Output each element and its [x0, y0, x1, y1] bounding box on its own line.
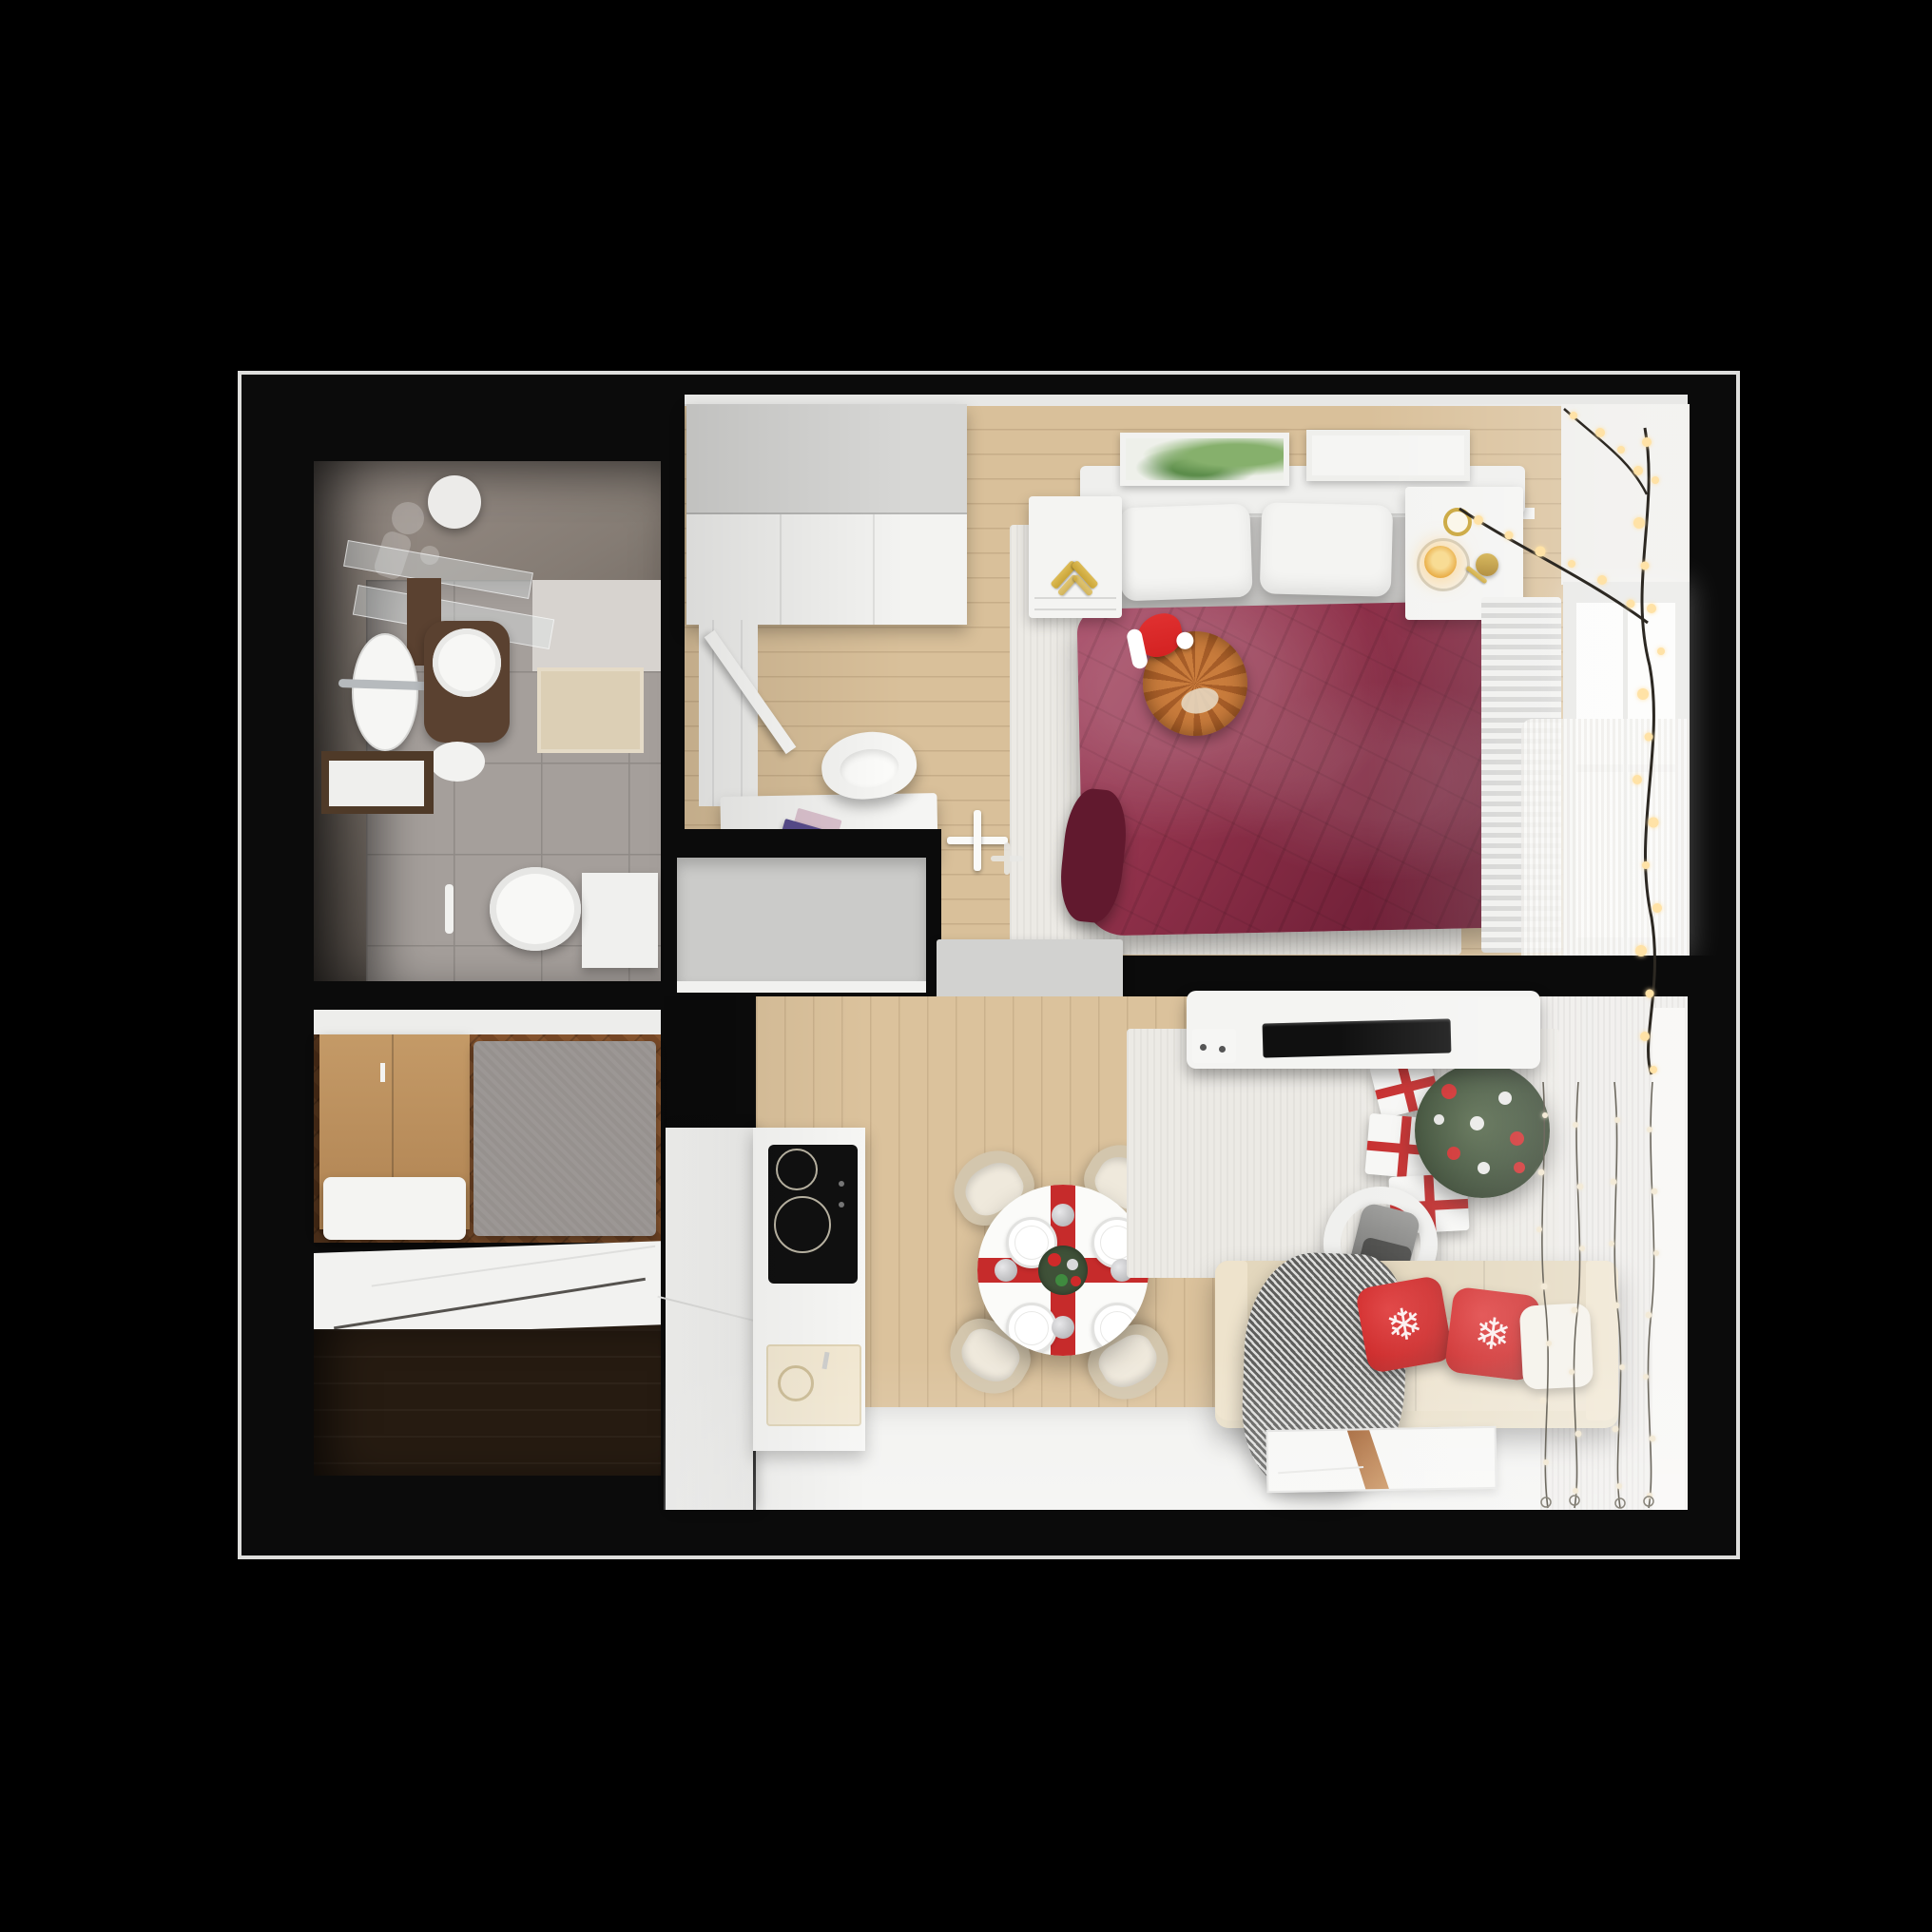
hob-knob [839, 1181, 844, 1187]
string-light-curtain-living [1519, 1082, 1695, 1510]
wall-art-astronaut [392, 502, 424, 534]
napkin-ring [995, 1259, 1017, 1282]
snowflake-icon: ❄ [1355, 1275, 1454, 1374]
cabinet-seam [657, 1296, 759, 1323]
red-snowflake-pillow: ❄ [1355, 1275, 1454, 1374]
napkin-ring [1052, 1316, 1074, 1339]
bracket-hole [1200, 1044, 1207, 1051]
hob-knob-2 [839, 1202, 844, 1207]
bathroom-mirror [428, 475, 481, 529]
tree-ball-white [1498, 1092, 1512, 1105]
storage-white-panel [314, 1241, 661, 1337]
tree-ball-white-2 [1470, 1116, 1484, 1130]
tree-ball-red [1441, 1084, 1457, 1099]
toilet [490, 867, 581, 951]
bath-cabinet [582, 873, 658, 968]
wardrobe-handle [380, 1063, 385, 1082]
induction-hob [768, 1145, 858, 1284]
hallway-bench [323, 1177, 466, 1240]
ornament-green [1055, 1274, 1068, 1286]
art-rug-line [1278, 1466, 1363, 1474]
hallway-shelf [314, 1010, 661, 1034]
tree-ball-white-4 [1434, 1114, 1444, 1125]
tv-flat-panel [1263, 1018, 1452, 1057]
entry-closet-front-edge [677, 981, 926, 993]
sink-basin-ring [778, 1365, 814, 1401]
tree-ball-red-3 [1447, 1147, 1460, 1160]
apartment-render-canvas: ❄ ❄ [0, 0, 1932, 1932]
shower-handle [445, 884, 454, 934]
vanity-cabinet-door [329, 761, 424, 806]
ornament-red [1048, 1253, 1061, 1266]
plate [1092, 1303, 1143, 1354]
storage-plank-line [372, 1246, 656, 1287]
centerpiece-wreath [1038, 1246, 1088, 1295]
kitchen-sink [766, 1344, 861, 1426]
dining-table [977, 1185, 1149, 1356]
tree-ball-white-3 [1478, 1162, 1490, 1174]
bracket-hole-2 [1219, 1046, 1226, 1053]
kitchen-counter [753, 1128, 865, 1451]
kitchen-tall-cabinet [666, 1128, 753, 1510]
hob-ring-large [774, 1196, 831, 1253]
ornament-red-2 [1071, 1276, 1081, 1286]
tv-bracket [1192, 1029, 1236, 1063]
plate [1006, 1303, 1057, 1354]
storage-dark-floor [314, 1329, 661, 1476]
napkin-ring [1052, 1204, 1074, 1227]
kitchen-faucet [821, 1352, 829, 1370]
art-rug-wood-swoosh [1337, 1426, 1400, 1493]
floor-art-rug [1265, 1426, 1497, 1493]
hob-ring-small [776, 1149, 818, 1190]
sink-right-bowl [433, 628, 501, 697]
soap-dish [430, 742, 485, 782]
sink-left [352, 633, 418, 751]
hallway-rug [473, 1041, 656, 1236]
ornament-silver [1067, 1259, 1078, 1270]
entry-closet-top [677, 858, 926, 981]
bath-mat [537, 667, 644, 753]
fairy-lights-bedroom [1450, 404, 1697, 1084]
